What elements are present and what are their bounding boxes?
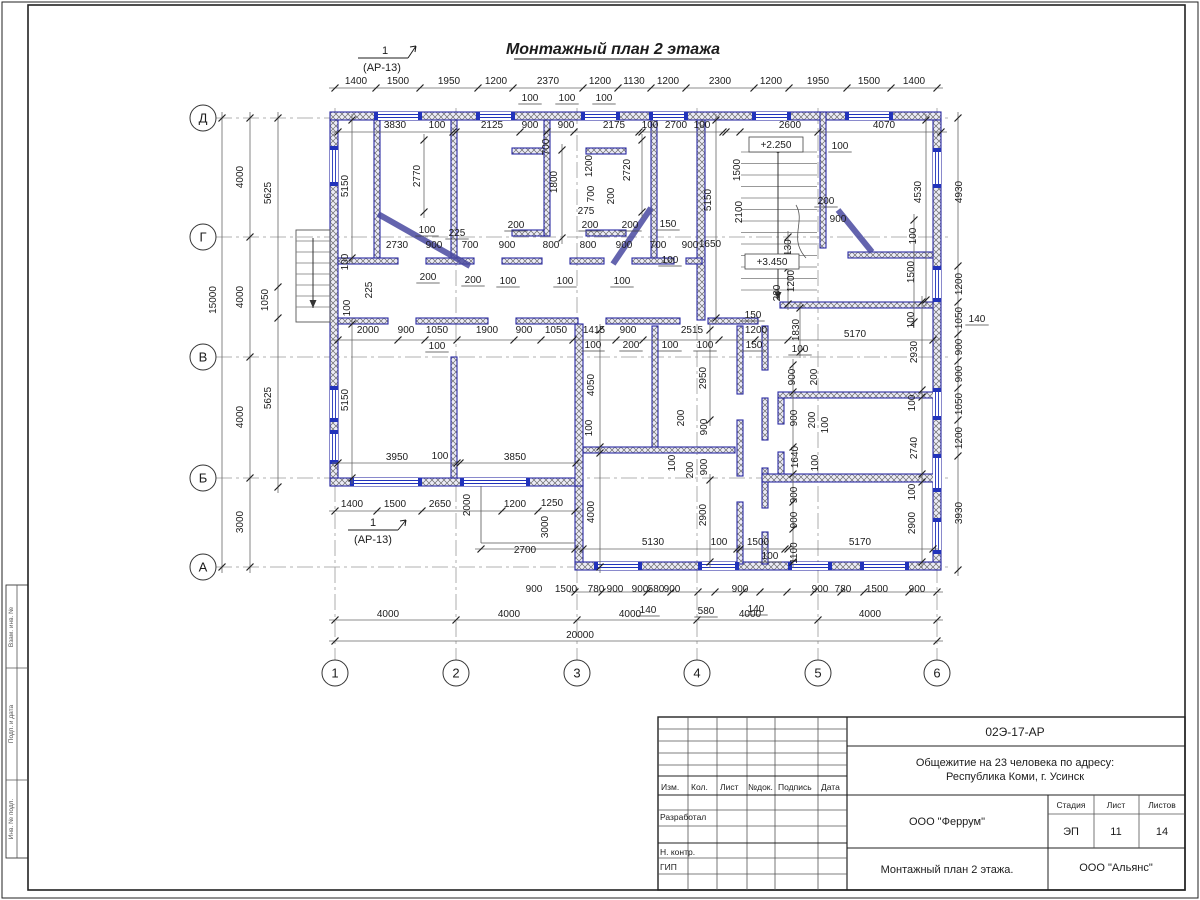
dim-label: 100 bbox=[419, 225, 436, 236]
dim-label: 700 bbox=[586, 185, 597, 202]
dim-label: 1950 bbox=[807, 76, 830, 87]
dim-label: 1900 bbox=[476, 325, 499, 336]
dim-label: 200 bbox=[623, 340, 640, 351]
dim-label: 2650 bbox=[429, 499, 452, 510]
dim-label: 2720 bbox=[622, 158, 633, 181]
axis-number: 6 bbox=[933, 666, 940, 681]
window bbox=[330, 388, 338, 420]
drawing-name: Монтажный план 2 этажа. bbox=[881, 864, 1014, 876]
dim-label: 100 bbox=[614, 276, 631, 287]
window bbox=[596, 562, 640, 570]
dim-label: 100 bbox=[559, 93, 576, 104]
dim-label: 4070 bbox=[873, 120, 896, 131]
project-name-line2: Республика Коми, г. Усинск bbox=[946, 771, 1084, 783]
frame-side-label: Подп. и дата bbox=[8, 704, 15, 743]
dim-label: 3930 bbox=[954, 501, 965, 524]
section-number: 1 bbox=[382, 45, 388, 57]
window bbox=[651, 112, 686, 120]
dim-label: 100 bbox=[642, 120, 659, 131]
wall-segment bbox=[686, 258, 702, 264]
dim-label: 3950 bbox=[386, 452, 409, 463]
project-name-line1: Общежитие на 23 человека по адресу: bbox=[916, 757, 1114, 769]
dim-label: 1200 bbox=[745, 325, 768, 336]
dim-label: 2300 bbox=[709, 76, 732, 87]
dim-label: 2730 bbox=[386, 240, 409, 251]
dim-label: 900 bbox=[732, 584, 749, 595]
dim-label: 900 bbox=[526, 584, 543, 595]
dim-label: 2000 bbox=[357, 325, 380, 336]
col-list: Лист bbox=[720, 782, 739, 792]
window bbox=[330, 148, 338, 184]
dim-label: 580 bbox=[648, 584, 665, 595]
dim-label: 140 bbox=[640, 605, 657, 616]
dim-label: 2600 bbox=[779, 120, 802, 131]
dim-label: 100 bbox=[584, 419, 595, 436]
dim-label: 200 bbox=[807, 411, 818, 428]
dim-label: 1200 bbox=[954, 272, 965, 295]
dim-label: 100 bbox=[429, 341, 446, 352]
dim-label: 1500 bbox=[384, 499, 407, 510]
dim-label: 800 bbox=[543, 240, 560, 251]
axis-letter: Б bbox=[199, 471, 208, 486]
dim-label: 780 bbox=[835, 584, 852, 595]
window bbox=[933, 390, 941, 418]
dim-label: 100 bbox=[340, 253, 351, 270]
title-block: Изм. Кол. Лист №док. Подпись Дата Разраб… bbox=[658, 717, 1185, 890]
dim-label: 4000 bbox=[498, 609, 521, 620]
dim-label: 100 bbox=[711, 537, 728, 548]
dim-label: 100 bbox=[906, 311, 917, 328]
axis-number: 5 bbox=[814, 666, 821, 681]
axis-number: 2 bbox=[452, 666, 459, 681]
dim-label: 1200 bbox=[584, 154, 595, 177]
dim-label: 1400 bbox=[345, 76, 368, 87]
page-title: Монтажный план 2 этажа bbox=[506, 41, 720, 58]
dim-label: 200 bbox=[676, 409, 687, 426]
dim-label: 580 bbox=[698, 606, 715, 617]
dim-label: 900 bbox=[426, 240, 443, 251]
dim-label: 2000 bbox=[462, 493, 473, 516]
dim-label: 2700 bbox=[665, 120, 688, 131]
dim-label: 1200 bbox=[657, 76, 680, 87]
dim-label: 1500 bbox=[555, 584, 578, 595]
dim-label: 150 bbox=[746, 340, 763, 351]
dim-label: 900 bbox=[499, 240, 516, 251]
dim-label: 900 bbox=[812, 584, 829, 595]
wall-segment bbox=[737, 502, 743, 564]
window bbox=[583, 112, 618, 120]
axis-letter: А bbox=[199, 560, 208, 575]
dim-label: 1500 bbox=[747, 537, 770, 548]
dim-label: 900 bbox=[699, 458, 710, 475]
dim-label: 100 bbox=[832, 141, 849, 152]
dim-label: 780 bbox=[588, 584, 605, 595]
dim-label: 140 bbox=[969, 314, 986, 325]
dim-label: 700 bbox=[462, 240, 479, 251]
dim-label: 1130 bbox=[623, 76, 645, 87]
dim-label: 2175 bbox=[603, 120, 626, 131]
dim-label: 1050 bbox=[545, 325, 568, 336]
dim-label: 3000 bbox=[235, 510, 246, 533]
dim-label: 1950 bbox=[438, 76, 461, 87]
dim-label: 5170 bbox=[849, 537, 872, 548]
dim-label: 900 bbox=[699, 418, 710, 435]
dim-label: 200 bbox=[465, 275, 482, 286]
wall-segment bbox=[586, 148, 626, 154]
dim-label: 900 bbox=[620, 325, 637, 336]
dim-label: 4930 bbox=[954, 180, 965, 203]
dim-label: 4000 bbox=[377, 609, 400, 620]
dim-label: 700 bbox=[541, 138, 552, 155]
dim-label: 100 bbox=[429, 120, 446, 131]
doc-code: 02Э-17-АР bbox=[985, 725, 1044, 739]
window bbox=[933, 268, 941, 300]
dim-label: 1250 bbox=[541, 498, 564, 509]
dim-label: 200 bbox=[582, 220, 599, 231]
window bbox=[847, 112, 891, 120]
axis-letter: Д bbox=[199, 111, 208, 126]
dim-label: 2900 bbox=[698, 503, 709, 526]
dim-label: 1200 bbox=[504, 499, 527, 510]
dim-label: 900 bbox=[789, 511, 800, 528]
dim-label: 1500 bbox=[866, 584, 889, 595]
dim-label: 800 bbox=[580, 240, 597, 251]
row-razrabotal: Разработал bbox=[660, 812, 706, 822]
dim-label: 700 bbox=[650, 240, 667, 251]
wall-segment bbox=[778, 398, 784, 424]
elevation-mark: +2.250 bbox=[761, 140, 792, 151]
title-block-right-grid: 02Э-17-АР Общежитие на 23 человека по ад… bbox=[847, 725, 1185, 890]
wall-segment bbox=[762, 398, 768, 440]
dim-label: 5625 bbox=[263, 386, 274, 409]
dim-label: 1500 bbox=[732, 158, 743, 181]
dim-label: 1500 bbox=[387, 76, 410, 87]
dim-label: 5150 bbox=[340, 174, 351, 197]
dim-label: 1200 bbox=[760, 76, 783, 87]
dim-label: 100 bbox=[432, 451, 449, 462]
customer-org: ООО "Альянс" bbox=[1079, 862, 1153, 874]
window bbox=[478, 112, 513, 120]
dim-label: 2930 bbox=[909, 340, 920, 363]
dim-label: 100 bbox=[792, 344, 809, 355]
col-podpis: Подпись bbox=[778, 782, 812, 792]
dim-label: 100 bbox=[697, 340, 714, 351]
frame-side-column: Взам. инв. №Подп. и датаИнв. № подл. bbox=[6, 585, 28, 858]
dim-label: 2700 bbox=[514, 545, 537, 556]
frame-side-label: Инв. № подл. bbox=[8, 799, 15, 840]
dim-label: 5150 bbox=[703, 188, 714, 211]
dim-label: 225 bbox=[449, 228, 466, 239]
dim-label: 100 bbox=[908, 227, 919, 244]
dim-label: 1200 bbox=[786, 269, 797, 292]
dim-label: 900 bbox=[789, 409, 800, 426]
dim-label: 1500 bbox=[858, 76, 881, 87]
dim-label: 1050 bbox=[260, 288, 271, 311]
wall-segment bbox=[848, 252, 933, 258]
wall-segment bbox=[451, 357, 457, 478]
col-izm: Изм. bbox=[661, 782, 679, 792]
dim-label: 1050 bbox=[954, 306, 965, 329]
wall-segment bbox=[762, 474, 935, 482]
designer-org: ООО "Феррум" bbox=[909, 816, 985, 828]
dim-label: 1640 bbox=[790, 445, 801, 468]
wall-segment bbox=[606, 318, 680, 324]
dim-label: 2515 bbox=[681, 325, 704, 336]
window bbox=[700, 562, 737, 570]
dim-label: 1650 bbox=[699, 239, 722, 250]
dim-label: 1400 bbox=[903, 76, 926, 87]
dim-label: 1050 bbox=[954, 392, 965, 415]
dim-label: 4000 bbox=[619, 609, 642, 620]
dim-label: 1050 bbox=[426, 325, 449, 336]
dim-label: 5130 bbox=[642, 537, 665, 548]
dim-label: 1100 bbox=[789, 542, 800, 564]
wall-segment bbox=[338, 318, 388, 324]
dim-label: 3000 bbox=[540, 515, 551, 538]
dim-label: 100 bbox=[500, 276, 517, 287]
window bbox=[754, 112, 789, 120]
axis-number: 3 bbox=[573, 666, 580, 681]
sheets-label: Листов bbox=[1148, 800, 1176, 810]
dim-label: 100 bbox=[907, 483, 918, 500]
dim-label: 200 bbox=[772, 284, 783, 301]
dim-label: 4000 bbox=[235, 405, 246, 428]
dim-label: 900 bbox=[830, 214, 847, 225]
dim-label: 4000 bbox=[859, 609, 882, 620]
window bbox=[330, 432, 338, 462]
section-number: 1 bbox=[370, 517, 376, 529]
dim-label: 1415 bbox=[583, 325, 606, 336]
dim-label: 3830 bbox=[384, 120, 407, 131]
wall-segment bbox=[575, 324, 583, 486]
dim-label: 2370 bbox=[537, 76, 560, 87]
dim-label: 100 bbox=[762, 551, 779, 562]
stage-label: Стадия bbox=[1057, 800, 1086, 810]
dim-label: 900 bbox=[664, 584, 681, 595]
dim-label: 150 bbox=[745, 310, 762, 321]
dim-label: 5170 bbox=[844, 329, 867, 340]
dim-label: 1500 bbox=[906, 260, 917, 283]
floor-plan-svg: Взам. инв. №Подп. и датаИнв. № подл. Мон… bbox=[0, 0, 1200, 900]
axis-number: 4 bbox=[693, 666, 700, 681]
title-block-left-grid: Изм. Кол. Лист №док. Подпись Дата Разраб… bbox=[658, 717, 847, 890]
dim-label: 2100 bbox=[734, 200, 745, 223]
dim-label: 100 bbox=[810, 454, 821, 471]
dim-label: 900 bbox=[632, 584, 649, 595]
dim-label: 1800 bbox=[549, 170, 560, 193]
dim-label: 200 bbox=[420, 272, 437, 283]
dim-label: 100 bbox=[907, 394, 918, 411]
wall-segment bbox=[512, 148, 544, 154]
dim-label: 1200 bbox=[485, 76, 508, 87]
axis-letter: В bbox=[199, 350, 208, 365]
dim-label: 900 bbox=[682, 240, 699, 251]
dim-label: 20000 bbox=[566, 630, 594, 641]
break-line bbox=[796, 205, 806, 258]
dim-label: 900 bbox=[954, 365, 965, 382]
wall-segment bbox=[737, 420, 743, 476]
frame-side-label: Взам. инв. № bbox=[8, 607, 15, 647]
window bbox=[862, 562, 907, 570]
dim-label: 4000 bbox=[235, 165, 246, 188]
dim-label: 100 bbox=[342, 299, 353, 316]
dim-label: 2900 bbox=[907, 511, 918, 534]
wall-segment bbox=[651, 120, 657, 260]
section-ref: (АР-13) bbox=[354, 534, 392, 546]
window bbox=[933, 456, 941, 490]
dim-label: 900 bbox=[607, 584, 624, 595]
row-gip: ГИП bbox=[660, 862, 677, 872]
dim-label: 2950 bbox=[698, 366, 709, 389]
dim-label: 225 bbox=[364, 281, 375, 298]
dim-label: 4000 bbox=[739, 609, 762, 620]
dim-label: 100 bbox=[694, 120, 711, 131]
section-ref: (АР-13) bbox=[363, 62, 401, 74]
dim-label: 4530 bbox=[913, 180, 924, 203]
drawing-sheet: Взам. инв. №Подп. и датаИнв. № подл. Мон… bbox=[0, 0, 1200, 900]
window bbox=[376, 112, 420, 120]
dim-label: 5150 bbox=[340, 388, 351, 411]
wall-segment bbox=[737, 326, 743, 394]
dim-label: 100 bbox=[585, 340, 602, 351]
elevation-mark: +3.450 bbox=[757, 257, 788, 268]
window bbox=[352, 478, 420, 486]
dim-label: 200 bbox=[685, 461, 696, 478]
dim-label: 200 bbox=[622, 220, 639, 231]
wall-segment bbox=[652, 326, 658, 447]
dim-label: 900 bbox=[522, 120, 539, 131]
dim-label: 900 bbox=[787, 368, 798, 385]
wall-segment bbox=[697, 120, 705, 320]
dim-label: 2125 bbox=[481, 120, 504, 131]
wall-segment bbox=[516, 318, 578, 324]
dim-label: 15000 bbox=[208, 286, 219, 314]
dim-label: 900 bbox=[789, 486, 800, 503]
col-ndok: №док. bbox=[748, 782, 773, 792]
sheet-label: Лист bbox=[1107, 800, 1126, 810]
drawing-title: Монтажный план 2 этажа bbox=[506, 41, 720, 59]
window bbox=[933, 150, 941, 186]
dim-label: 1400 bbox=[341, 499, 364, 510]
col-data: Дата bbox=[821, 782, 840, 792]
sheets-total: 14 bbox=[1156, 826, 1168, 838]
dim-label: 4000 bbox=[235, 285, 246, 308]
dim-label: 1830 bbox=[791, 318, 802, 341]
dim-label: 275 bbox=[578, 206, 595, 217]
dim-label: 4000 bbox=[586, 500, 597, 523]
col-kol: Кол. bbox=[691, 782, 708, 792]
dim-label: 1200 bbox=[589, 76, 612, 87]
dim-label: 100 bbox=[662, 255, 679, 266]
dim-label: 200 bbox=[809, 368, 820, 385]
dim-label: 2740 bbox=[909, 436, 920, 459]
dim-label: 900 bbox=[516, 325, 533, 336]
dim-label: 2770 bbox=[412, 164, 423, 187]
wall-segment bbox=[416, 318, 488, 324]
section-marker-top: 1 (АР-13) bbox=[358, 45, 416, 74]
dim-label: 100 bbox=[596, 93, 613, 104]
row-nkontr: Н. контр. bbox=[660, 847, 695, 857]
dim-label: 900 bbox=[909, 584, 926, 595]
dim-label: 5625 bbox=[263, 181, 274, 204]
dim-label: 4050 bbox=[586, 373, 597, 396]
dim-label: 900 bbox=[558, 120, 575, 131]
window bbox=[462, 478, 528, 486]
stage-value: ЭП bbox=[1063, 826, 1079, 838]
wall-segment bbox=[583, 447, 735, 453]
wall-segment bbox=[374, 120, 380, 260]
dim-label: 100 bbox=[667, 454, 678, 471]
dim-label: 200 bbox=[818, 196, 835, 207]
dim-label: 100 bbox=[662, 340, 679, 351]
dim-label: 900 bbox=[954, 338, 965, 355]
dim-label: 100 bbox=[820, 416, 831, 433]
dim-label: 900 bbox=[398, 325, 415, 336]
dim-label: 150 bbox=[660, 219, 677, 230]
wall-segment bbox=[502, 258, 542, 264]
dim-label: 100 bbox=[557, 276, 574, 287]
dim-label: 200 bbox=[606, 187, 617, 204]
axis-letter: Г bbox=[199, 230, 206, 245]
dim-label: 200 bbox=[508, 220, 525, 231]
section-marker-bottom: 1 (АР-13) bbox=[348, 517, 406, 546]
axis-number: 1 bbox=[331, 666, 338, 681]
wall-segment bbox=[570, 258, 604, 264]
dim-label: 3850 bbox=[504, 452, 527, 463]
dim-label: 100 bbox=[522, 93, 539, 104]
sheet-number: 11 bbox=[1110, 826, 1121, 838]
wall-segment bbox=[778, 452, 784, 476]
dimension-labels: 1400150019501200237012001130120023001200… bbox=[208, 76, 989, 641]
dim-label: 1200 bbox=[954, 426, 965, 449]
dim-label: 900 bbox=[616, 240, 633, 251]
